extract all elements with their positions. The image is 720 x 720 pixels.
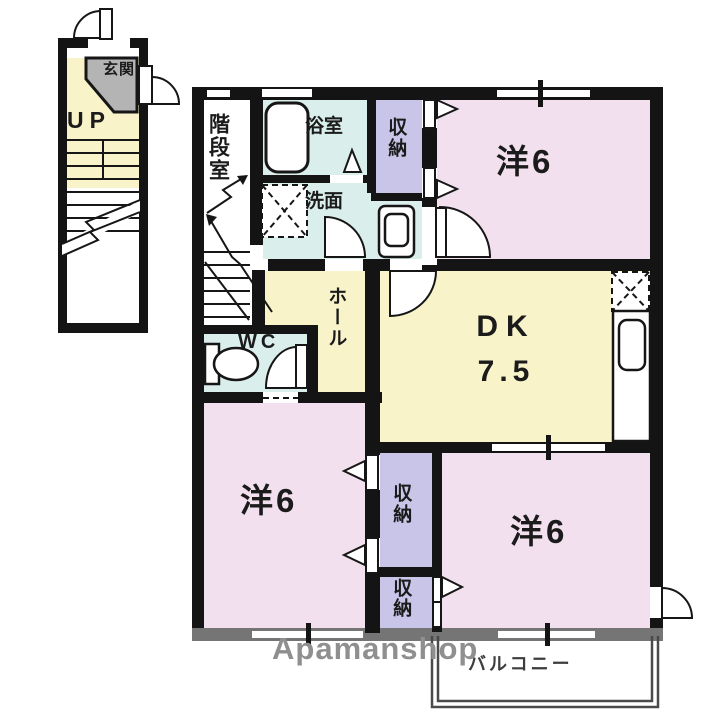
wall-storage-top-right-b bbox=[422, 198, 437, 207]
wall-dk-left bbox=[365, 259, 380, 455]
entrance-wall-left bbox=[58, 38, 67, 333]
door-leaf-western-top bbox=[436, 208, 446, 257]
closet-door-mid-b bbox=[366, 538, 378, 573]
label-bath: 浴室 bbox=[305, 116, 343, 137]
stairwell-arrowhead bbox=[206, 214, 217, 226]
closet-door-top-a bbox=[424, 100, 435, 128]
wall-right-upper bbox=[650, 87, 663, 587]
wall-right-lower bbox=[650, 618, 663, 628]
wall-closet-right-a bbox=[432, 453, 442, 577]
entrance-door-leaf-right bbox=[139, 66, 152, 104]
kitchen-sink bbox=[619, 320, 645, 370]
wall-left bbox=[192, 87, 204, 641]
wall-closet-left-a bbox=[365, 490, 380, 538]
wall-closet-left-b bbox=[365, 573, 380, 633]
entrance-door-leaf-top bbox=[100, 9, 112, 39]
floorplan-canvas: 玄関 UP 階段室 浴室 洗面 収納 洋6 DK 7.5 ホール WC 洋6 収… bbox=[0, 0, 720, 720]
closet-door-top-b bbox=[424, 168, 435, 198]
door-arc-right-wall bbox=[662, 588, 692, 618]
label-stairwell: 階段室 bbox=[206, 113, 230, 182]
closet-door-bottom-b bbox=[433, 602, 441, 627]
wall-below-wc bbox=[192, 392, 263, 403]
label-washroom: 洗面 bbox=[305, 191, 343, 212]
label-entrance: 玄関 bbox=[103, 62, 135, 79]
label-dk-size: 7.5 bbox=[458, 355, 554, 389]
entrance-door-arc-top bbox=[74, 11, 101, 38]
label-wc: WC bbox=[238, 331, 279, 353]
label-room-right: 洋6 bbox=[510, 514, 567, 551]
entrance-wall-bottom bbox=[58, 323, 148, 333]
label-room-left: 洋6 bbox=[240, 483, 297, 520]
entrance-wall-right-b bbox=[139, 104, 148, 333]
label-storage-top: 収納 bbox=[385, 117, 406, 159]
bathtub bbox=[266, 103, 308, 172]
wall-bath-right bbox=[367, 100, 376, 193]
vanity-sink-bowl bbox=[385, 214, 408, 246]
label-up: UP bbox=[67, 108, 111, 134]
closet-door-bottom-a bbox=[433, 577, 441, 602]
window-tick-top bbox=[538, 80, 543, 107]
wall-wc-right bbox=[307, 325, 318, 403]
wall-bath-bottom-a bbox=[256, 175, 330, 183]
window-bath bbox=[262, 89, 312, 97]
entrance-door-arc-right bbox=[152, 77, 179, 104]
window-western-top bbox=[497, 90, 590, 97]
closet-door-mid-a bbox=[366, 455, 378, 490]
door-leaf-wc bbox=[296, 345, 307, 388]
label-room-top-right: 洋6 bbox=[496, 144, 553, 181]
window-tick-dk bbox=[546, 435, 551, 460]
wall-western-top-bottom bbox=[437, 259, 663, 271]
label-storage-bottom: 収納 bbox=[390, 578, 411, 618]
wall-storage-top-right-a bbox=[422, 128, 437, 168]
wall-hall-left bbox=[252, 270, 265, 334]
entrance-wall-right-a bbox=[139, 38, 148, 66]
window-stairwell bbox=[207, 90, 230, 97]
stairwell-treads bbox=[204, 252, 250, 317]
wall-storage-top-bottom bbox=[371, 193, 422, 201]
window-tick-right bbox=[545, 623, 550, 646]
wall-mid-a bbox=[268, 259, 325, 271]
label-dk: DK bbox=[458, 310, 554, 344]
label-hall: ホール bbox=[325, 286, 346, 349]
watermark-text: Apamanshop bbox=[272, 632, 478, 667]
label-storage-mid: 収納 bbox=[390, 483, 411, 525]
label-balcony: バルコニー bbox=[468, 654, 573, 674]
